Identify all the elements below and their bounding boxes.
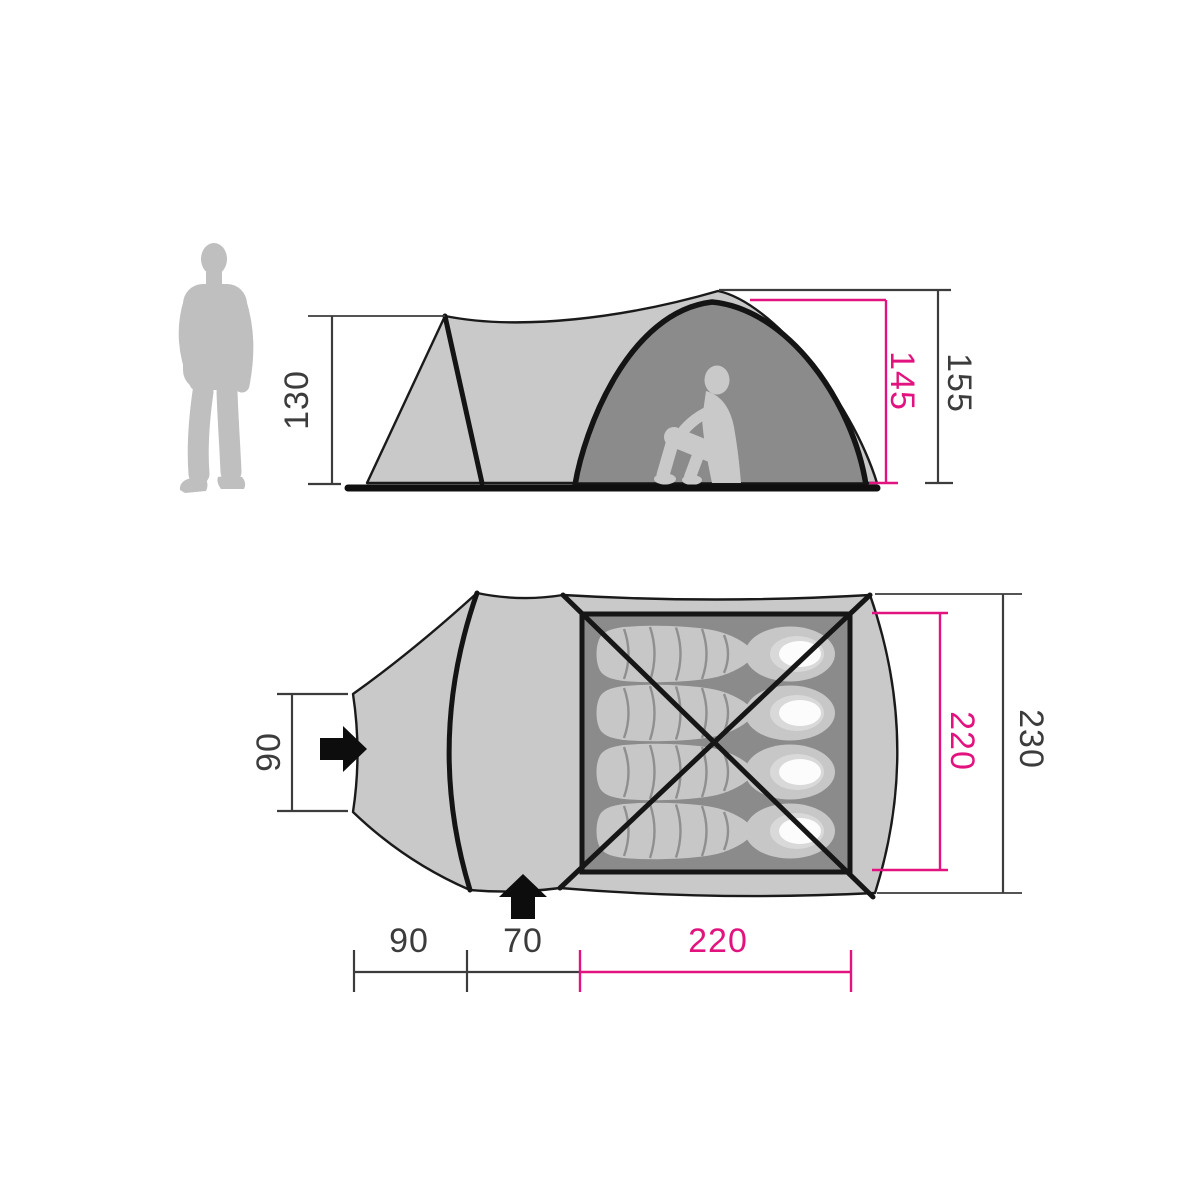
sleeping-bag-icon [597, 626, 836, 682]
person-leg-right [227, 392, 231, 472]
side-view: 130 145 155 [180, 243, 978, 493]
sitting-person-foot2 [682, 475, 702, 485]
dim-label-220-length: 220 [688, 922, 748, 960]
sitting-person-foot [654, 474, 676, 485]
dim-label-130: 130 [278, 370, 316, 430]
floor-plan: 90 220 230 90 70 220 [250, 593, 1050, 992]
dim-label-70-length: 70 [503, 922, 543, 960]
sleeping-bag-icon [597, 685, 836, 741]
sitting-person-head [705, 366, 730, 395]
dim-label-155: 155 [940, 353, 978, 413]
dim-label-90-door: 90 [250, 732, 288, 772]
standing-person-silhouette [180, 243, 247, 493]
diagram-canvas: 130 145 155 [0, 0, 1200, 1200]
tent-dimensions-diagram: 130 145 155 [0, 0, 1200, 1200]
person-leg-left [198, 392, 203, 474]
person-shoe-right [217, 476, 245, 490]
person-neck [206, 272, 222, 286]
dim-lengths-bottom: 90 70 220 [354, 922, 851, 992]
person-shoe-left [180, 478, 208, 493]
sleeping-bag-icon [597, 744, 836, 800]
dim-label-145: 145 [883, 351, 921, 411]
sleeping-bag-icon [597, 803, 836, 859]
person-head [201, 243, 227, 275]
person-arm-right [239, 302, 246, 385]
dim-label-90-length: 90 [389, 922, 429, 960]
dim-label-230: 230 [1012, 709, 1050, 769]
dim-label-220-width: 220 [943, 711, 981, 771]
